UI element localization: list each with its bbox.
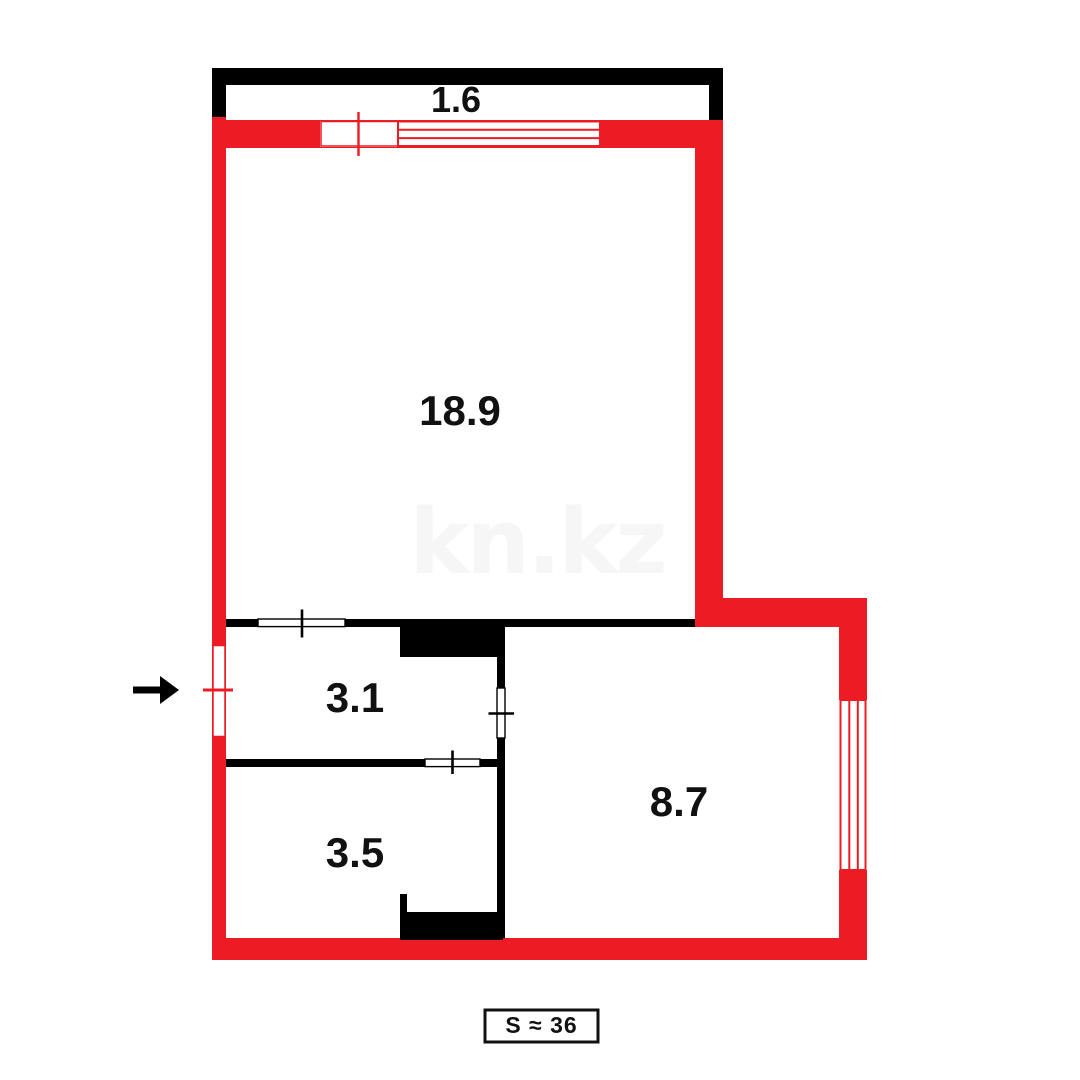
total-area-label: S ≈ 36 <box>505 1012 577 1038</box>
living-room-area-label: 18.9 <box>419 387 501 434</box>
wall-block-bathroom <box>400 912 503 940</box>
bathroom-area-label: 3.5 <box>326 829 384 876</box>
entrance-door <box>203 646 233 737</box>
interior-walls <box>226 619 695 940</box>
total-area-box: S ≈ 36 <box>485 1010 598 1042</box>
floor-plan-canvas: kn.kz <box>0 0 1080 1080</box>
entrance-arrow-icon <box>133 676 179 704</box>
wall-left <box>212 117 226 960</box>
balcony-wall-right <box>709 68 723 121</box>
wall-bottom <box>212 938 867 960</box>
wall-stub-bathroom <box>400 894 407 914</box>
wall-hallway-right <box>497 627 505 938</box>
top-opening-gap <box>320 121 600 147</box>
kn-kz-watermark: kn.kz <box>409 490 664 595</box>
right-window <box>839 700 867 870</box>
wall-block-hallway <box>400 619 500 657</box>
kitchen-area-label: 8.7 <box>650 778 708 825</box>
wall-right-upper <box>695 120 723 598</box>
balcony-area-label: 1.6 <box>431 79 481 120</box>
balcony-wall-left <box>212 68 226 118</box>
hallway-area-label: 3.1 <box>326 674 384 721</box>
right-window-gap <box>839 700 867 870</box>
floor-plan: kn.kz <box>0 0 1080 1080</box>
